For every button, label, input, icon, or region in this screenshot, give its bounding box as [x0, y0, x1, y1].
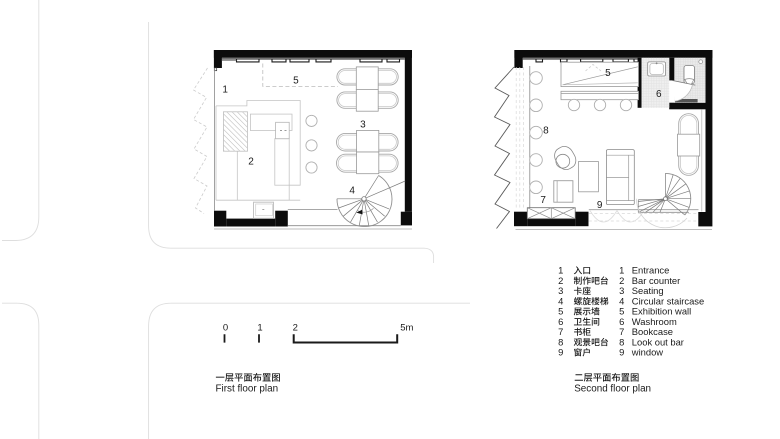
svg-text:2: 2 — [293, 322, 298, 333]
svg-text:4: 4 — [349, 186, 355, 197]
svg-text:First floor plan: First floor plan — [216, 383, 279, 394]
svg-text:2: 2 — [248, 156, 254, 167]
svg-text:Second floor plan: Second floor plan — [574, 383, 651, 394]
svg-text:5: 5 — [293, 75, 299, 86]
svg-text:window: window — [631, 347, 663, 358]
svg-text:8: 8 — [543, 126, 549, 137]
svg-text:6: 6 — [656, 89, 662, 100]
svg-text:0: 0 — [223, 322, 228, 333]
svg-text:9: 9 — [558, 347, 563, 358]
svg-text:1: 1 — [222, 84, 228, 95]
svg-text:1: 1 — [257, 322, 262, 333]
svg-text:3: 3 — [360, 119, 366, 130]
svg-text:5: 5 — [605, 68, 611, 79]
svg-text:9: 9 — [619, 347, 624, 358]
svg-text:5m: 5m — [400, 322, 413, 333]
svg-text:9: 9 — [597, 200, 603, 211]
svg-text:7: 7 — [540, 195, 546, 206]
